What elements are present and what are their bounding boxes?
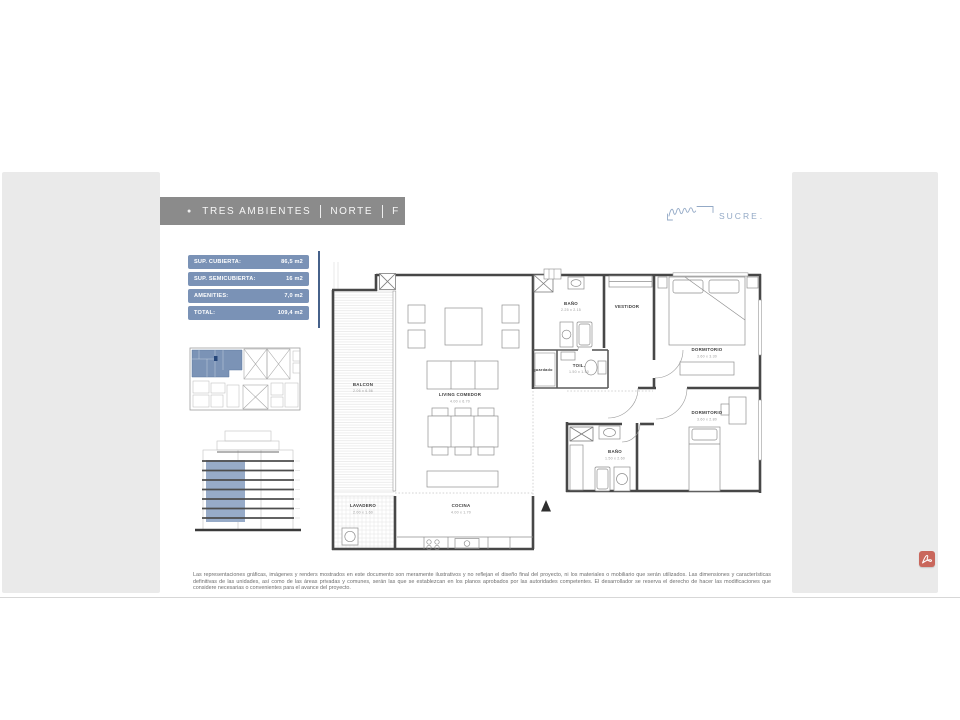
room-dims-toil: 1.50 x 1.50 — [569, 370, 589, 374]
table-row: SUP. CUBIERTA: 86,5 m2 — [188, 255, 309, 269]
laundry-fixtures — [342, 528, 358, 545]
title-segment-unit-letter: F — [392, 206, 400, 217]
dresser — [680, 362, 734, 375]
row-label: SUP. CUBIERTA: — [194, 259, 241, 265]
coffee-table — [445, 308, 482, 345]
console — [427, 471, 498, 487]
room-dims-bath1: 2.25 x 2.15 — [561, 308, 581, 312]
room-dims-bedroom2: 3.60 x 2.80 — [697, 418, 717, 422]
vertical-divider — [318, 251, 320, 328]
summary-table: SUP. CUBIERTA: 86,5 m2 SUP. SEMICUBIERTA… — [188, 255, 309, 323]
room-label-living: LIVING COMEDOR — [439, 392, 482, 397]
room-label-vestidor: VESTIDOR — [615, 304, 640, 309]
bullet-icon: ● — [187, 208, 191, 215]
room-label-cocina: COCINA — [452, 503, 471, 508]
title-segment-orientation: NORTE — [330, 206, 373, 217]
room-dims-bath2: 1.50 x 2.60 — [605, 457, 625, 461]
sucre-logo: SUCRE . — [665, 201, 762, 221]
floorplan-drawing: BALCON 2.06 x 6.56 LIVING COMEDOR 4.00 x… — [328, 260, 773, 558]
north-arrow-icon — [541, 500, 551, 512]
room-dims-cocina: 4.00 x 1.70 — [451, 511, 471, 515]
viewer-background: ● TRES AMBIENTES NORTE F SUCRE . SUP. CU… — [0, 0, 960, 720]
room-dims-lavadero: 2.00 x 1.60 — [353, 511, 373, 515]
title-separator — [320, 205, 321, 218]
floorplan-slide: ● TRES AMBIENTES NORTE F SUCRE . SUP. CU… — [160, 172, 792, 593]
desk — [729, 397, 746, 424]
bedroom1-furniture — [658, 277, 758, 375]
prev-slide-panel[interactable] — [2, 172, 160, 593]
unit-floors-highlight — [206, 460, 245, 522]
logo-text: SUCRE — [719, 211, 759, 221]
room-label-lavadero: LAVADERO — [350, 503, 376, 508]
room-label-bedroom1: DORMITORIO — [692, 347, 723, 352]
table-row: AMENITIES: 7,0 m2 — [188, 289, 309, 303]
row-value: 16 m2 — [286, 276, 303, 282]
title-bar: ● TRES AMBIENTES NORTE F — [160, 197, 405, 225]
room-label-toil: TOIL. — [573, 363, 585, 368]
bath1-fixtures — [560, 277, 592, 347]
unit-highlight — [192, 350, 242, 377]
room-label-bath1: BAÑO — [564, 301, 578, 306]
row-value: 86,5 m2 — [281, 259, 303, 265]
row-label: AMENITIES: — [194, 293, 228, 299]
room-label-balcon: BALCON — [353, 382, 373, 387]
sofa — [427, 361, 498, 389]
logo-dot: . — [760, 211, 762, 221]
room-dims-living: 4.00 x 6.70 — [450, 400, 470, 404]
disclaimer-text: Las representaciones gráficas, imágenes … — [193, 572, 771, 592]
room-label-guardado: guardado — [533, 368, 553, 372]
title-separator — [382, 205, 383, 218]
row-value: 7,0 m2 — [284, 293, 303, 299]
title-segment-unit-type: TRES AMBIENTES — [202, 206, 311, 217]
room-label-bedroom2: DORMITORIO — [692, 410, 723, 415]
dining-table — [428, 416, 498, 447]
keyplan-thumbnail — [185, 343, 305, 421]
table-row: TOTAL: 109,4 m2 — [188, 306, 309, 320]
next-slide-panel[interactable] — [792, 172, 938, 593]
adobe-pdf-icon[interactable] — [919, 551, 935, 567]
closet — [609, 276, 652, 287]
signature-scribble-icon — [665, 201, 719, 221]
row-value: 109,4 m2 — [278, 310, 303, 316]
room-dims-bedroom1: 3.60 x 3.30 — [697, 355, 717, 359]
elevation-diagram — [193, 430, 305, 533]
row-label: SUP. SEMICUBIERTA: — [194, 276, 256, 282]
room-label-bath2: BAÑO — [608, 449, 622, 454]
page-divider-line — [0, 597, 960, 598]
table-row: SUP. SEMICUBIERTA: 16 m2 — [188, 272, 309, 286]
door-arcs — [578, 336, 687, 442]
row-label: TOTAL: — [194, 310, 215, 316]
room-dims-balcon: 2.06 x 6.56 — [353, 389, 373, 393]
